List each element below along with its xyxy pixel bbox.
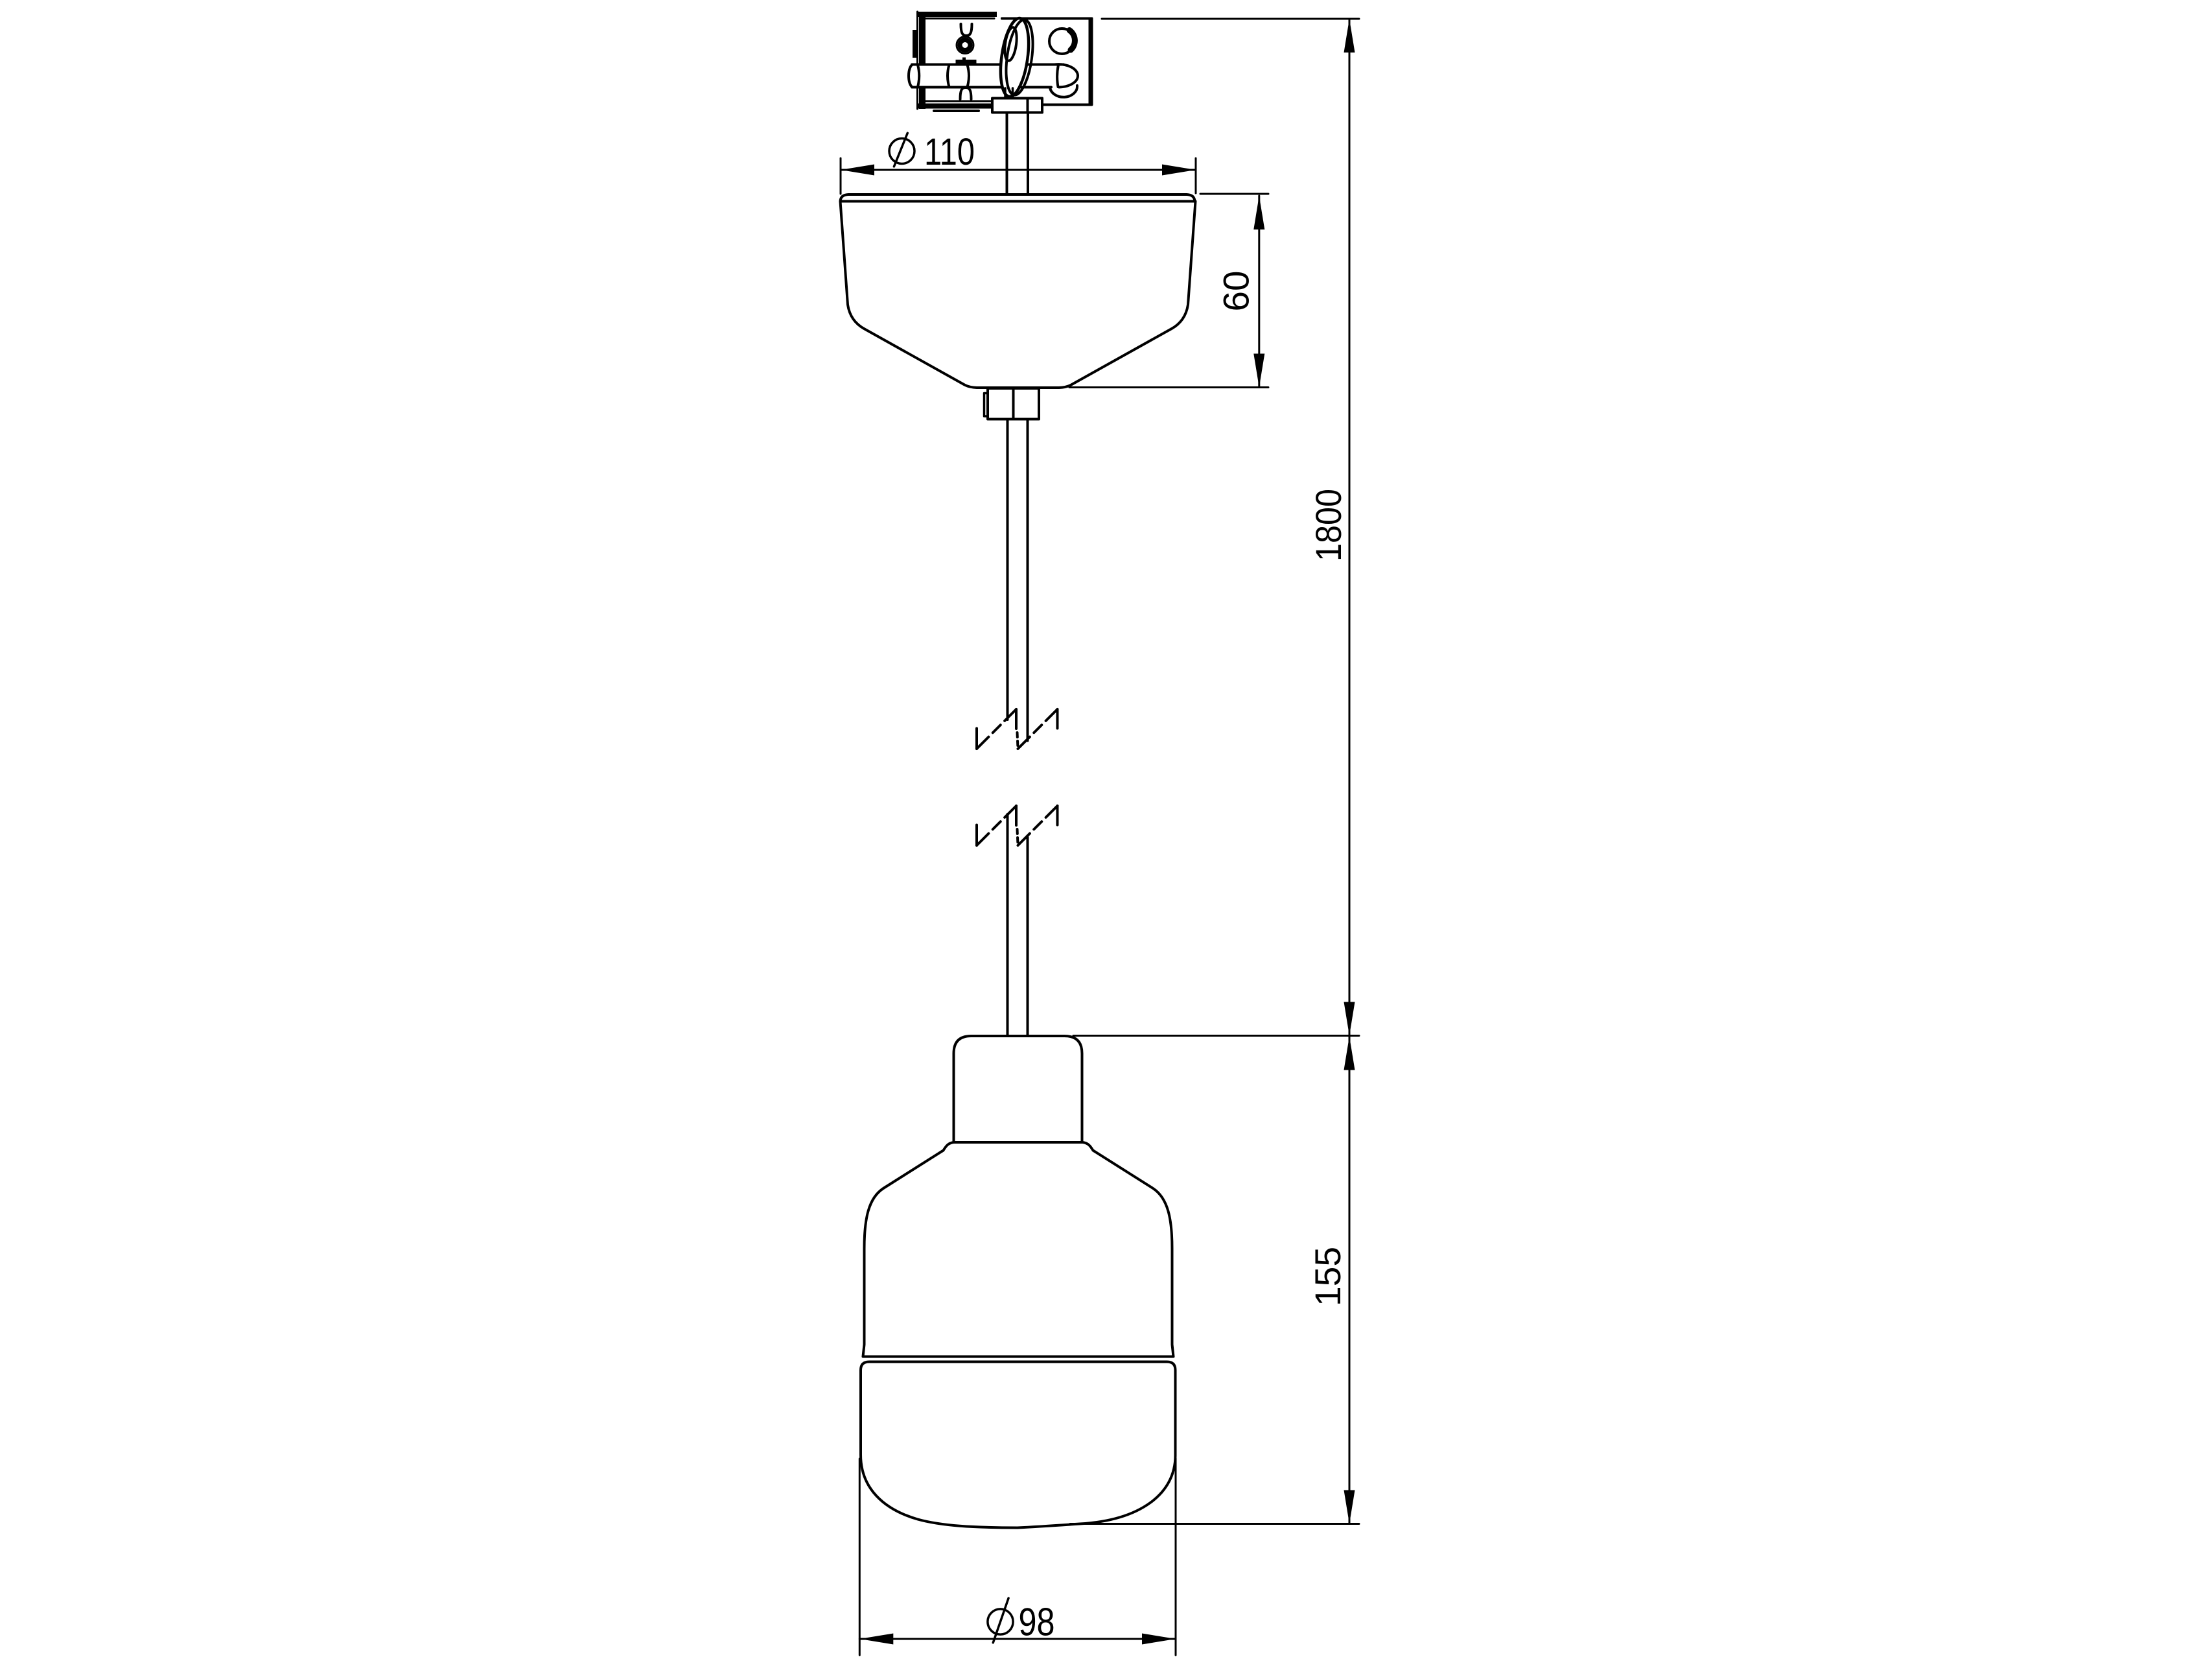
svg-text:60: 60 bbox=[1215, 271, 1256, 312]
svg-text:98: 98 bbox=[1019, 1601, 1055, 1644]
svg-text:1800: 1800 bbox=[1308, 489, 1349, 561]
svg-text:110: 110 bbox=[924, 131, 975, 173]
svg-text:155: 155 bbox=[1307, 1247, 1348, 1306]
